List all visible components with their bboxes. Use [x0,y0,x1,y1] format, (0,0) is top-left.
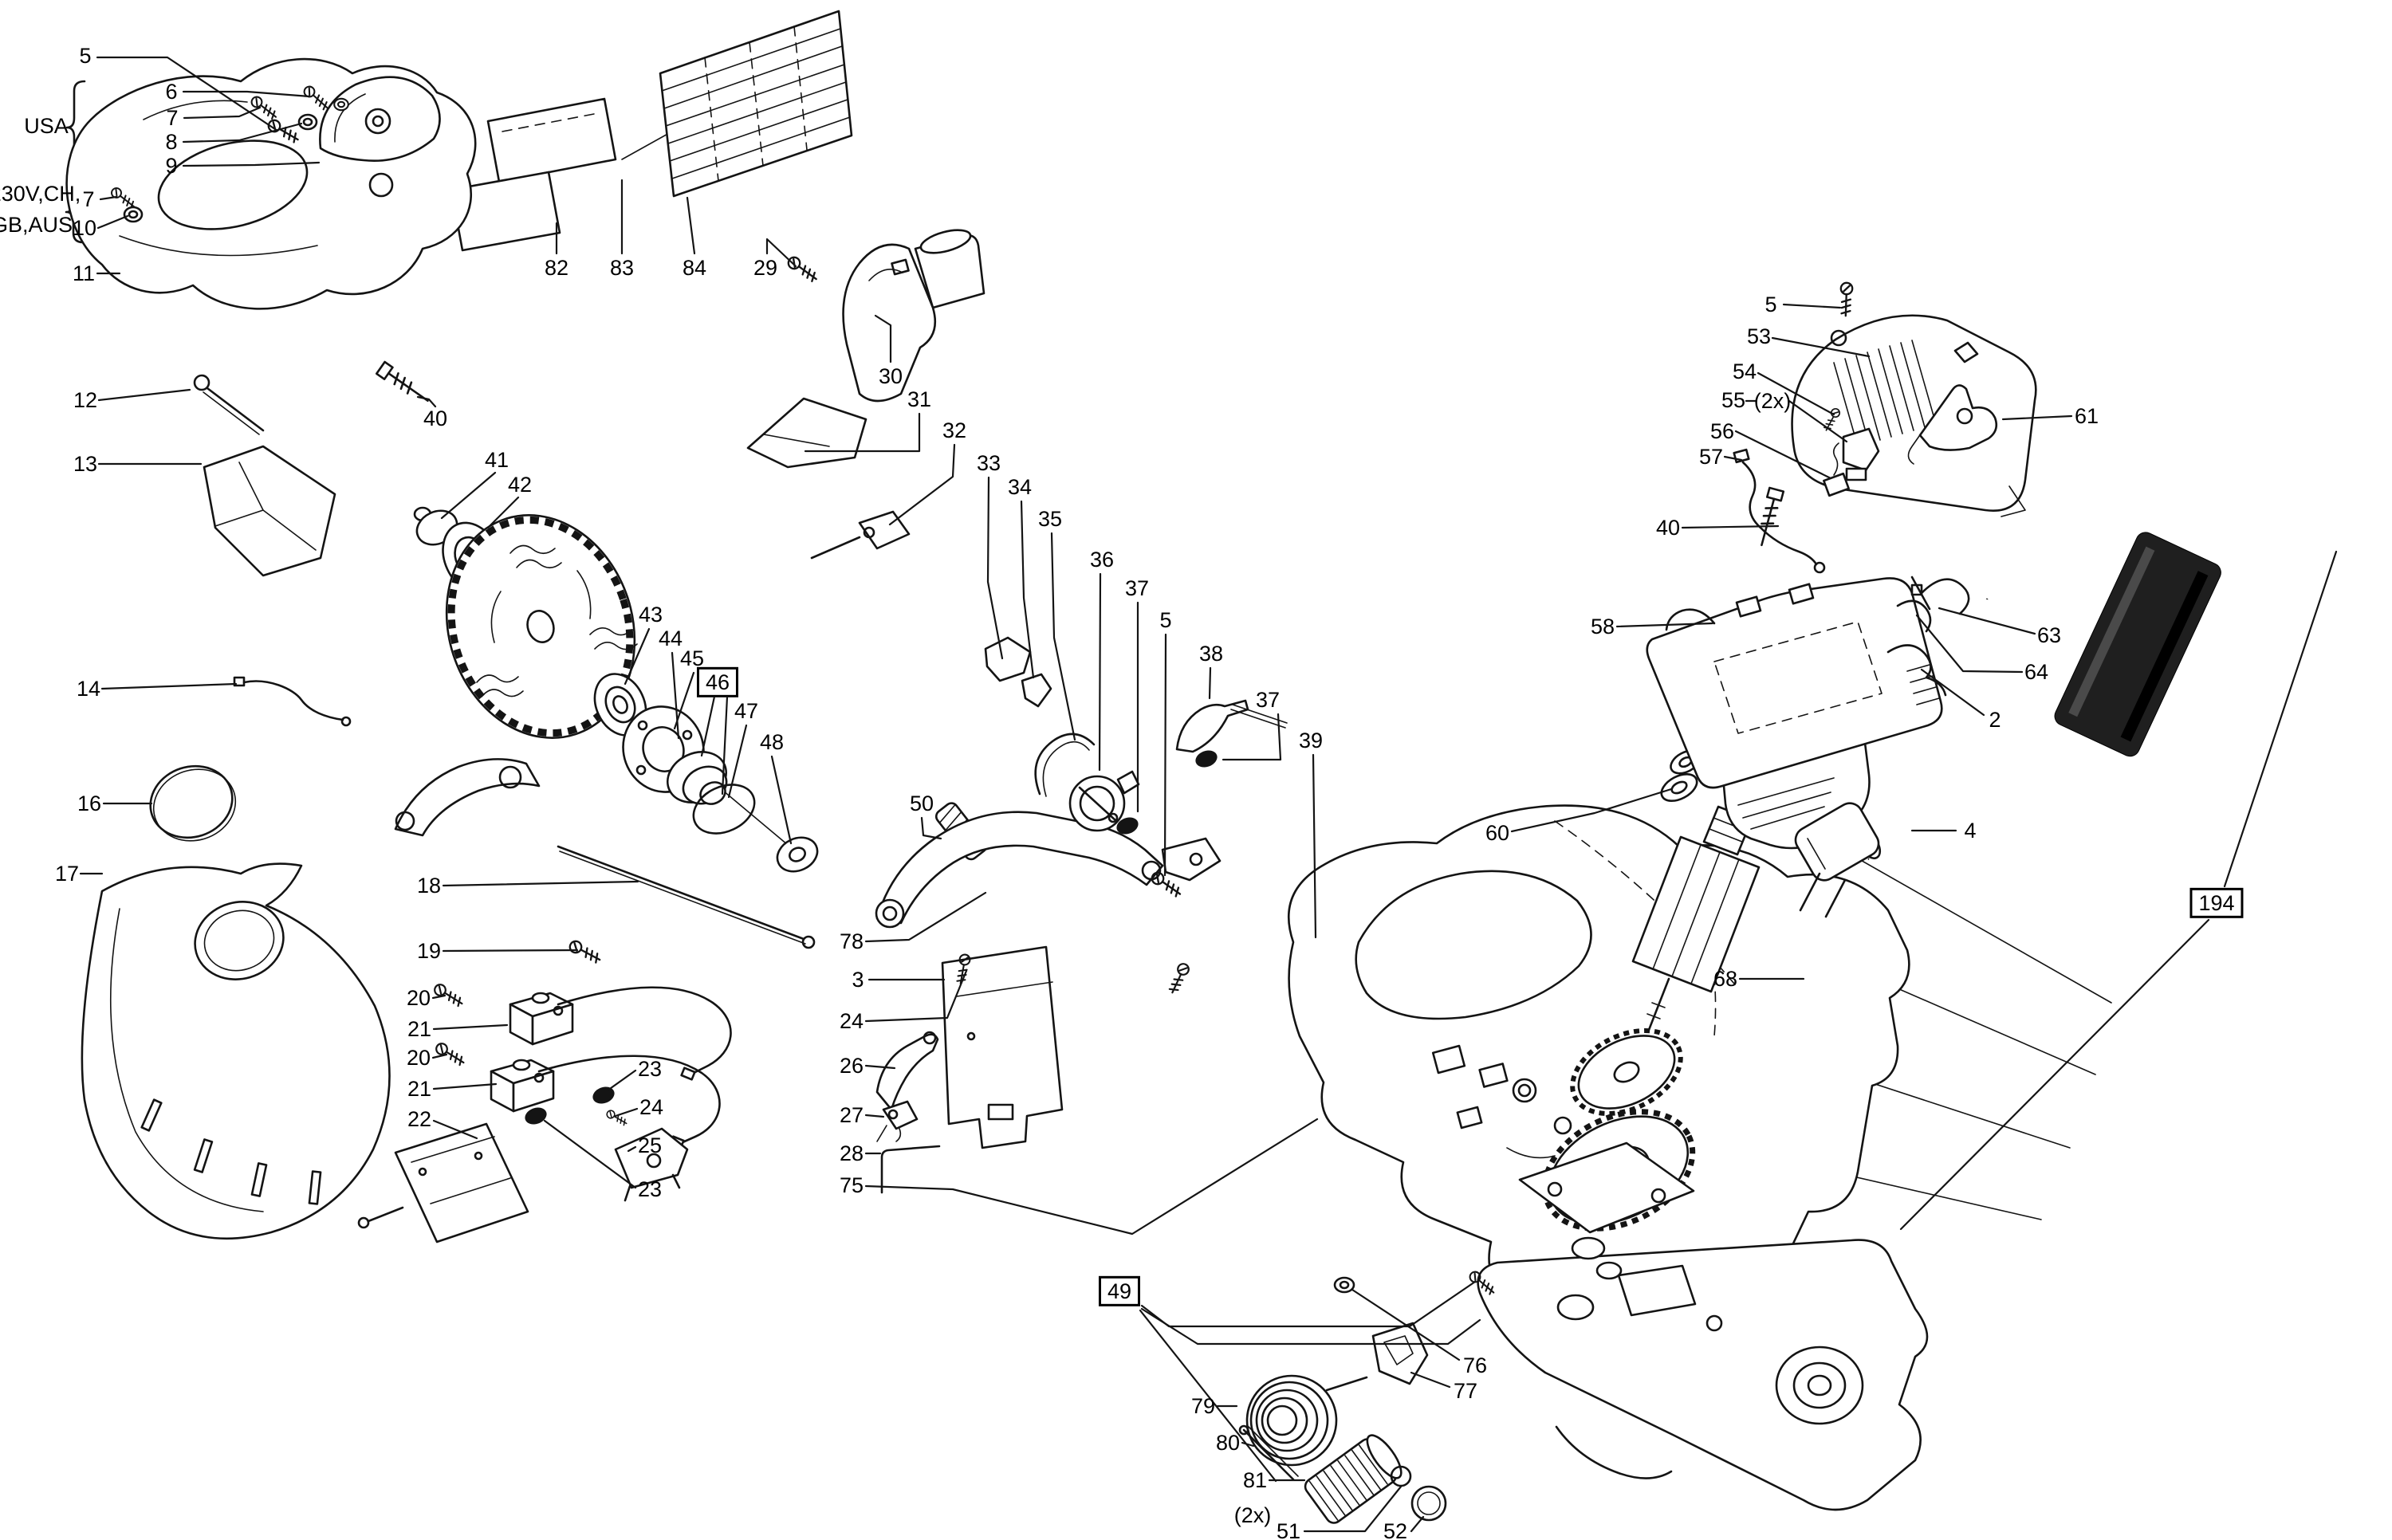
leader-line-27 [866,1115,883,1117]
screw-icon [435,1042,466,1067]
grommet-icon [1193,748,1219,770]
leader-line-18 [443,882,638,886]
leader-line-20 [433,1055,447,1058]
part-table-extension-drawing [2052,529,2224,760]
part-clamp-lever-drawing [1177,701,1287,752]
leader-line-63 [1939,608,2035,634]
washer-icon [334,99,348,110]
leader-line-77 [1411,1373,1450,1387]
part-clutch-assembly-drawing [659,743,823,878]
leader-line-194 [2225,552,2336,886]
leader-line-14 [102,684,236,689]
part-label-plates-drawing [451,99,616,250]
leader-line-46 [702,697,714,756]
screw-icon [1840,283,1853,316]
leader-line-29 [767,239,796,266]
screw-icon [433,983,465,1008]
leader-line-52 [1411,1517,1423,1531]
part-ring-drawing [141,756,245,851]
screw-icon [786,255,820,284]
part-dust-chute-drawing [786,226,984,401]
leader-line-35 [1052,533,1075,740]
leader-line-40 [418,397,435,407]
part-base-assembly-drawing [1468,1240,1927,1510]
leader-line-40 [1682,526,1778,528]
leader-line-24 [616,1109,637,1116]
leader-line-5 [1165,634,1166,875]
part-electronics-module-drawing [942,947,1062,1148]
part-cover-plate-drawing [359,1124,528,1242]
leader-line-36 [1100,574,1100,770]
leader-line-84 [687,198,694,253]
bolt-icon [376,362,431,407]
leader-line-48 [772,756,791,843]
leader-line-38 [1210,668,1210,698]
leader-line-32 [890,445,954,524]
leader-line-23 [608,1071,635,1090]
leader-line-19 [443,950,577,951]
part-bracket-drawing [204,446,335,576]
leader-line-20 [433,996,445,998]
screw-icon [1167,962,1190,995]
part-release-lever-drawing [877,1032,939,1192]
leader-line-21 [434,1084,496,1089]
part-sticker-sheet-drawing [660,11,852,196]
leader-line-41 [442,473,495,518]
screw-icon [605,1109,628,1126]
leader-line-5 [1784,304,1840,308]
screw-icon [568,939,602,964]
part-link-arm-drawing [395,759,814,948]
leader-line-49 [1142,1282,1475,1326]
leader-line-21 [434,1025,507,1029]
washer-icon [124,207,142,222]
part-field-housing-drawing [1647,578,1942,788]
exploded-parts-diagram: 56789USA230V,CH,GB,AUS710111213141617181… [0,0,2392,1540]
part-chip-deflector-drawing [748,399,866,467]
part-switch-blocks-drawing [433,983,731,1149]
part-cable-drawing [234,678,350,725]
part-locking-pin-drawing [195,375,263,434]
part-pivot-arm-drawing [876,812,1220,927]
leader-line-64 [1917,615,2022,672]
washer-icon [299,115,317,129]
part-lower-blade-guard-drawing [82,864,390,1239]
leader-line-75 [866,1119,1317,1234]
bolt-icon [1755,488,1784,547]
diagram-artwork [0,0,2392,1540]
leader-line-33 [988,477,1002,658]
leader-line-194 [1901,920,2209,1229]
leader-line-37 [1223,714,1281,760]
leader-line-12 [99,390,190,400]
